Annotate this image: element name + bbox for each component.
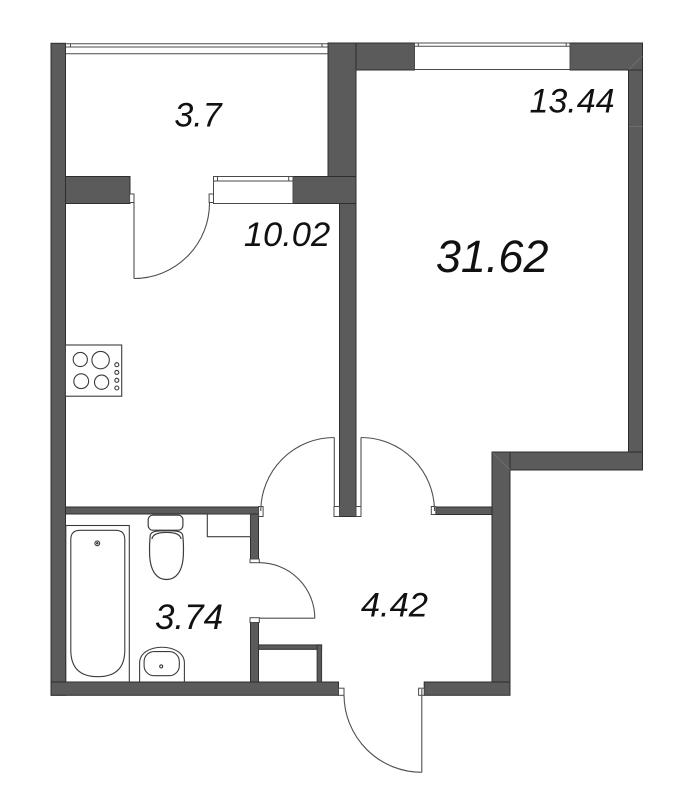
svg-text:13.44: 13.44: [529, 82, 614, 120]
svg-text:3.7: 3.7: [174, 97, 222, 135]
svg-text:3.74: 3.74: [155, 598, 223, 637]
svg-text:10.02: 10.02: [244, 216, 330, 254]
svg-text:4.42: 4.42: [361, 587, 428, 625]
svg-text:31.62: 31.62: [436, 231, 549, 282]
